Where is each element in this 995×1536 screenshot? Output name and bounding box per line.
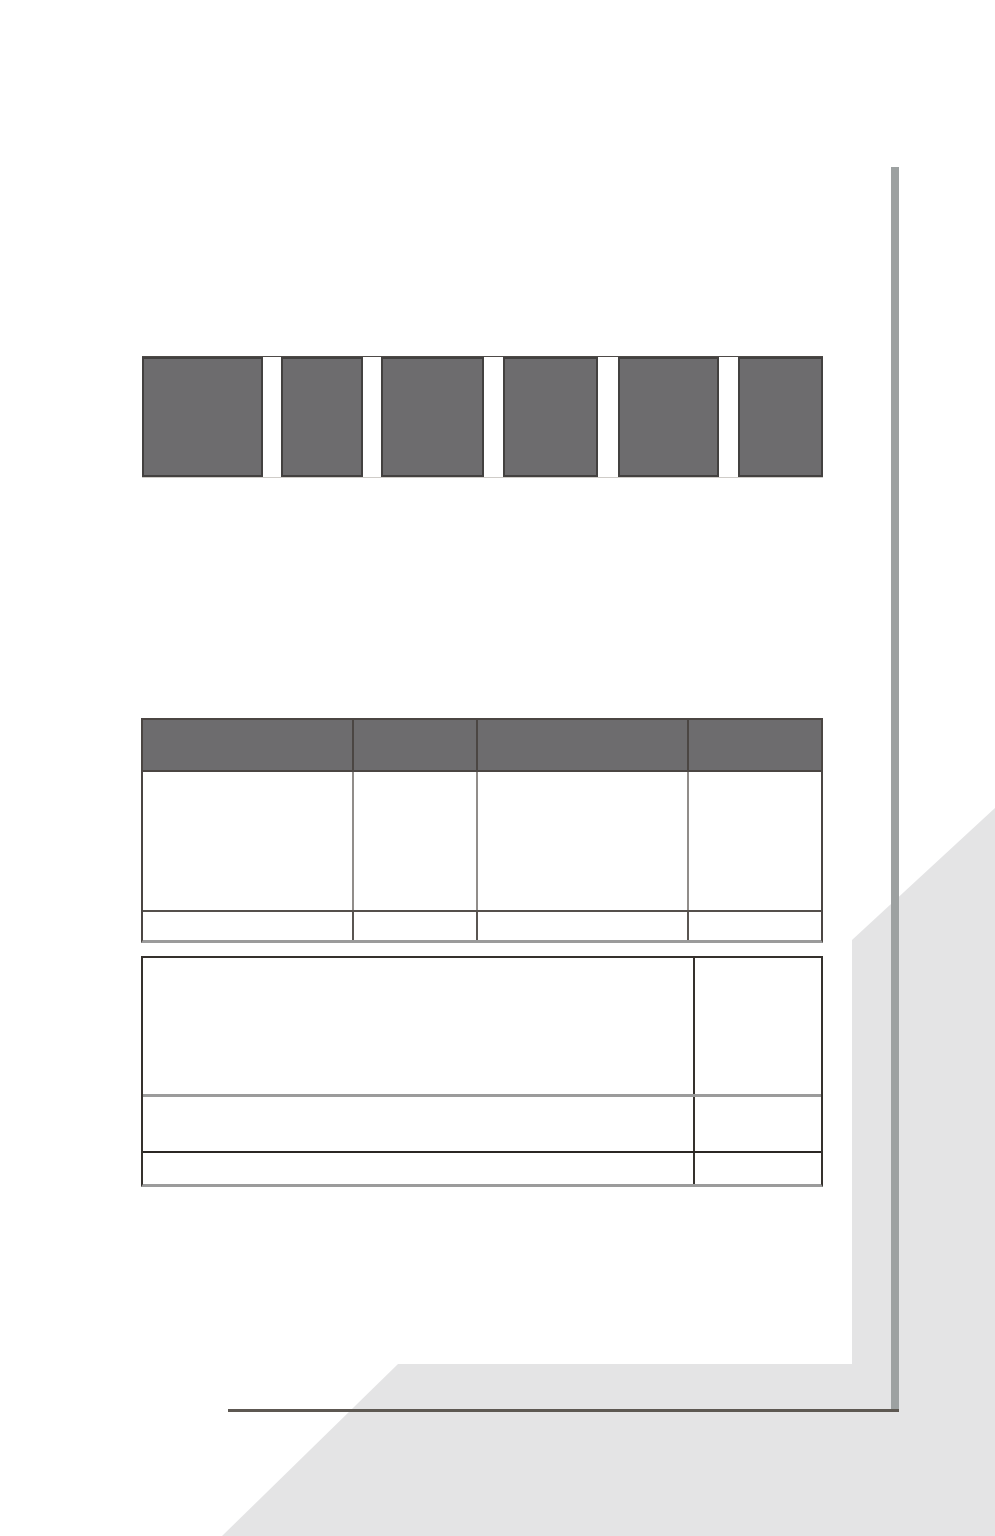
upper-table-row (143, 912, 821, 943)
lower-table (141, 956, 823, 1187)
upper-table (141, 718, 823, 943)
upper-table-header-cell (689, 720, 821, 770)
lower-table-cell (695, 1097, 821, 1151)
upper-table-header-row (143, 720, 821, 772)
header-band (142, 356, 823, 478)
upper-table-cell (689, 912, 821, 943)
upper-table-row (143, 772, 821, 912)
header-band-block (618, 357, 719, 477)
upper-table-header-cell (143, 720, 354, 770)
baseline-rule (228, 1409, 899, 1412)
lower-table-cell (143, 1153, 695, 1187)
upper-table-cell (354, 772, 478, 910)
header-band-block (281, 357, 363, 477)
lower-table-row (143, 958, 821, 1097)
header-band-block (381, 357, 484, 477)
document-page (0, 0, 995, 1536)
upper-table-cell (478, 912, 689, 943)
upper-table-header-cell (354, 720, 478, 770)
upper-table-header-cell (478, 720, 689, 770)
upper-table-cell (478, 772, 689, 910)
lower-table-row (143, 1153, 821, 1187)
header-band-block (503, 357, 598, 477)
upper-table-cell (143, 772, 354, 910)
lower-table-cell (143, 958, 695, 1094)
lower-table-cell (143, 1097, 695, 1151)
upper-table-cell (143, 912, 354, 943)
header-band-block (738, 357, 823, 477)
vertical-rule (891, 167, 899, 1411)
header-band-block (142, 357, 263, 477)
upper-table-cell (689, 772, 821, 910)
lower-table-cell (695, 958, 821, 1094)
lower-table-cell (695, 1153, 821, 1187)
upper-table-cell (354, 912, 478, 943)
lower-table-row (143, 1097, 821, 1153)
